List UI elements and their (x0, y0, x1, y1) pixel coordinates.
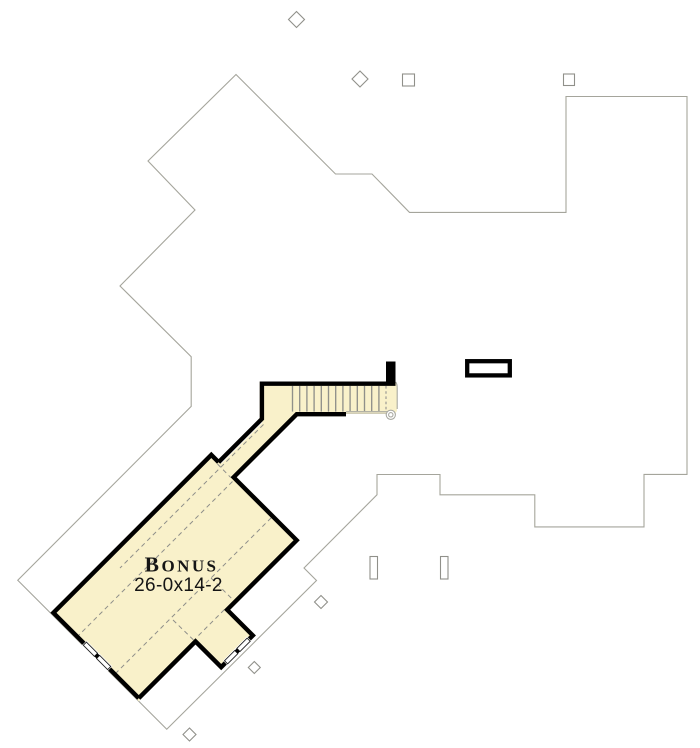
svg-text:26-0x14-2: 26-0x14-2 (134, 575, 223, 596)
svg-text:BONUS: BONUS (145, 553, 219, 577)
